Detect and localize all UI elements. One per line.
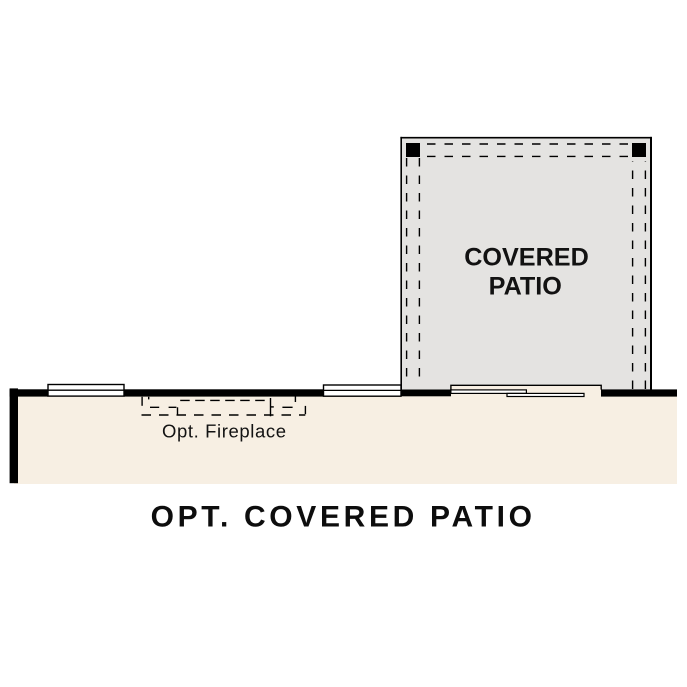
svg-text:PATIO: PATIO	[489, 272, 562, 300]
svg-text:Opt. Fireplace: Opt. Fireplace	[162, 420, 287, 441]
svg-text:OPT. COVERED PATIO: OPT. COVERED PATIO	[151, 501, 536, 534]
svg-text:COVERED: COVERED	[464, 244, 589, 272]
